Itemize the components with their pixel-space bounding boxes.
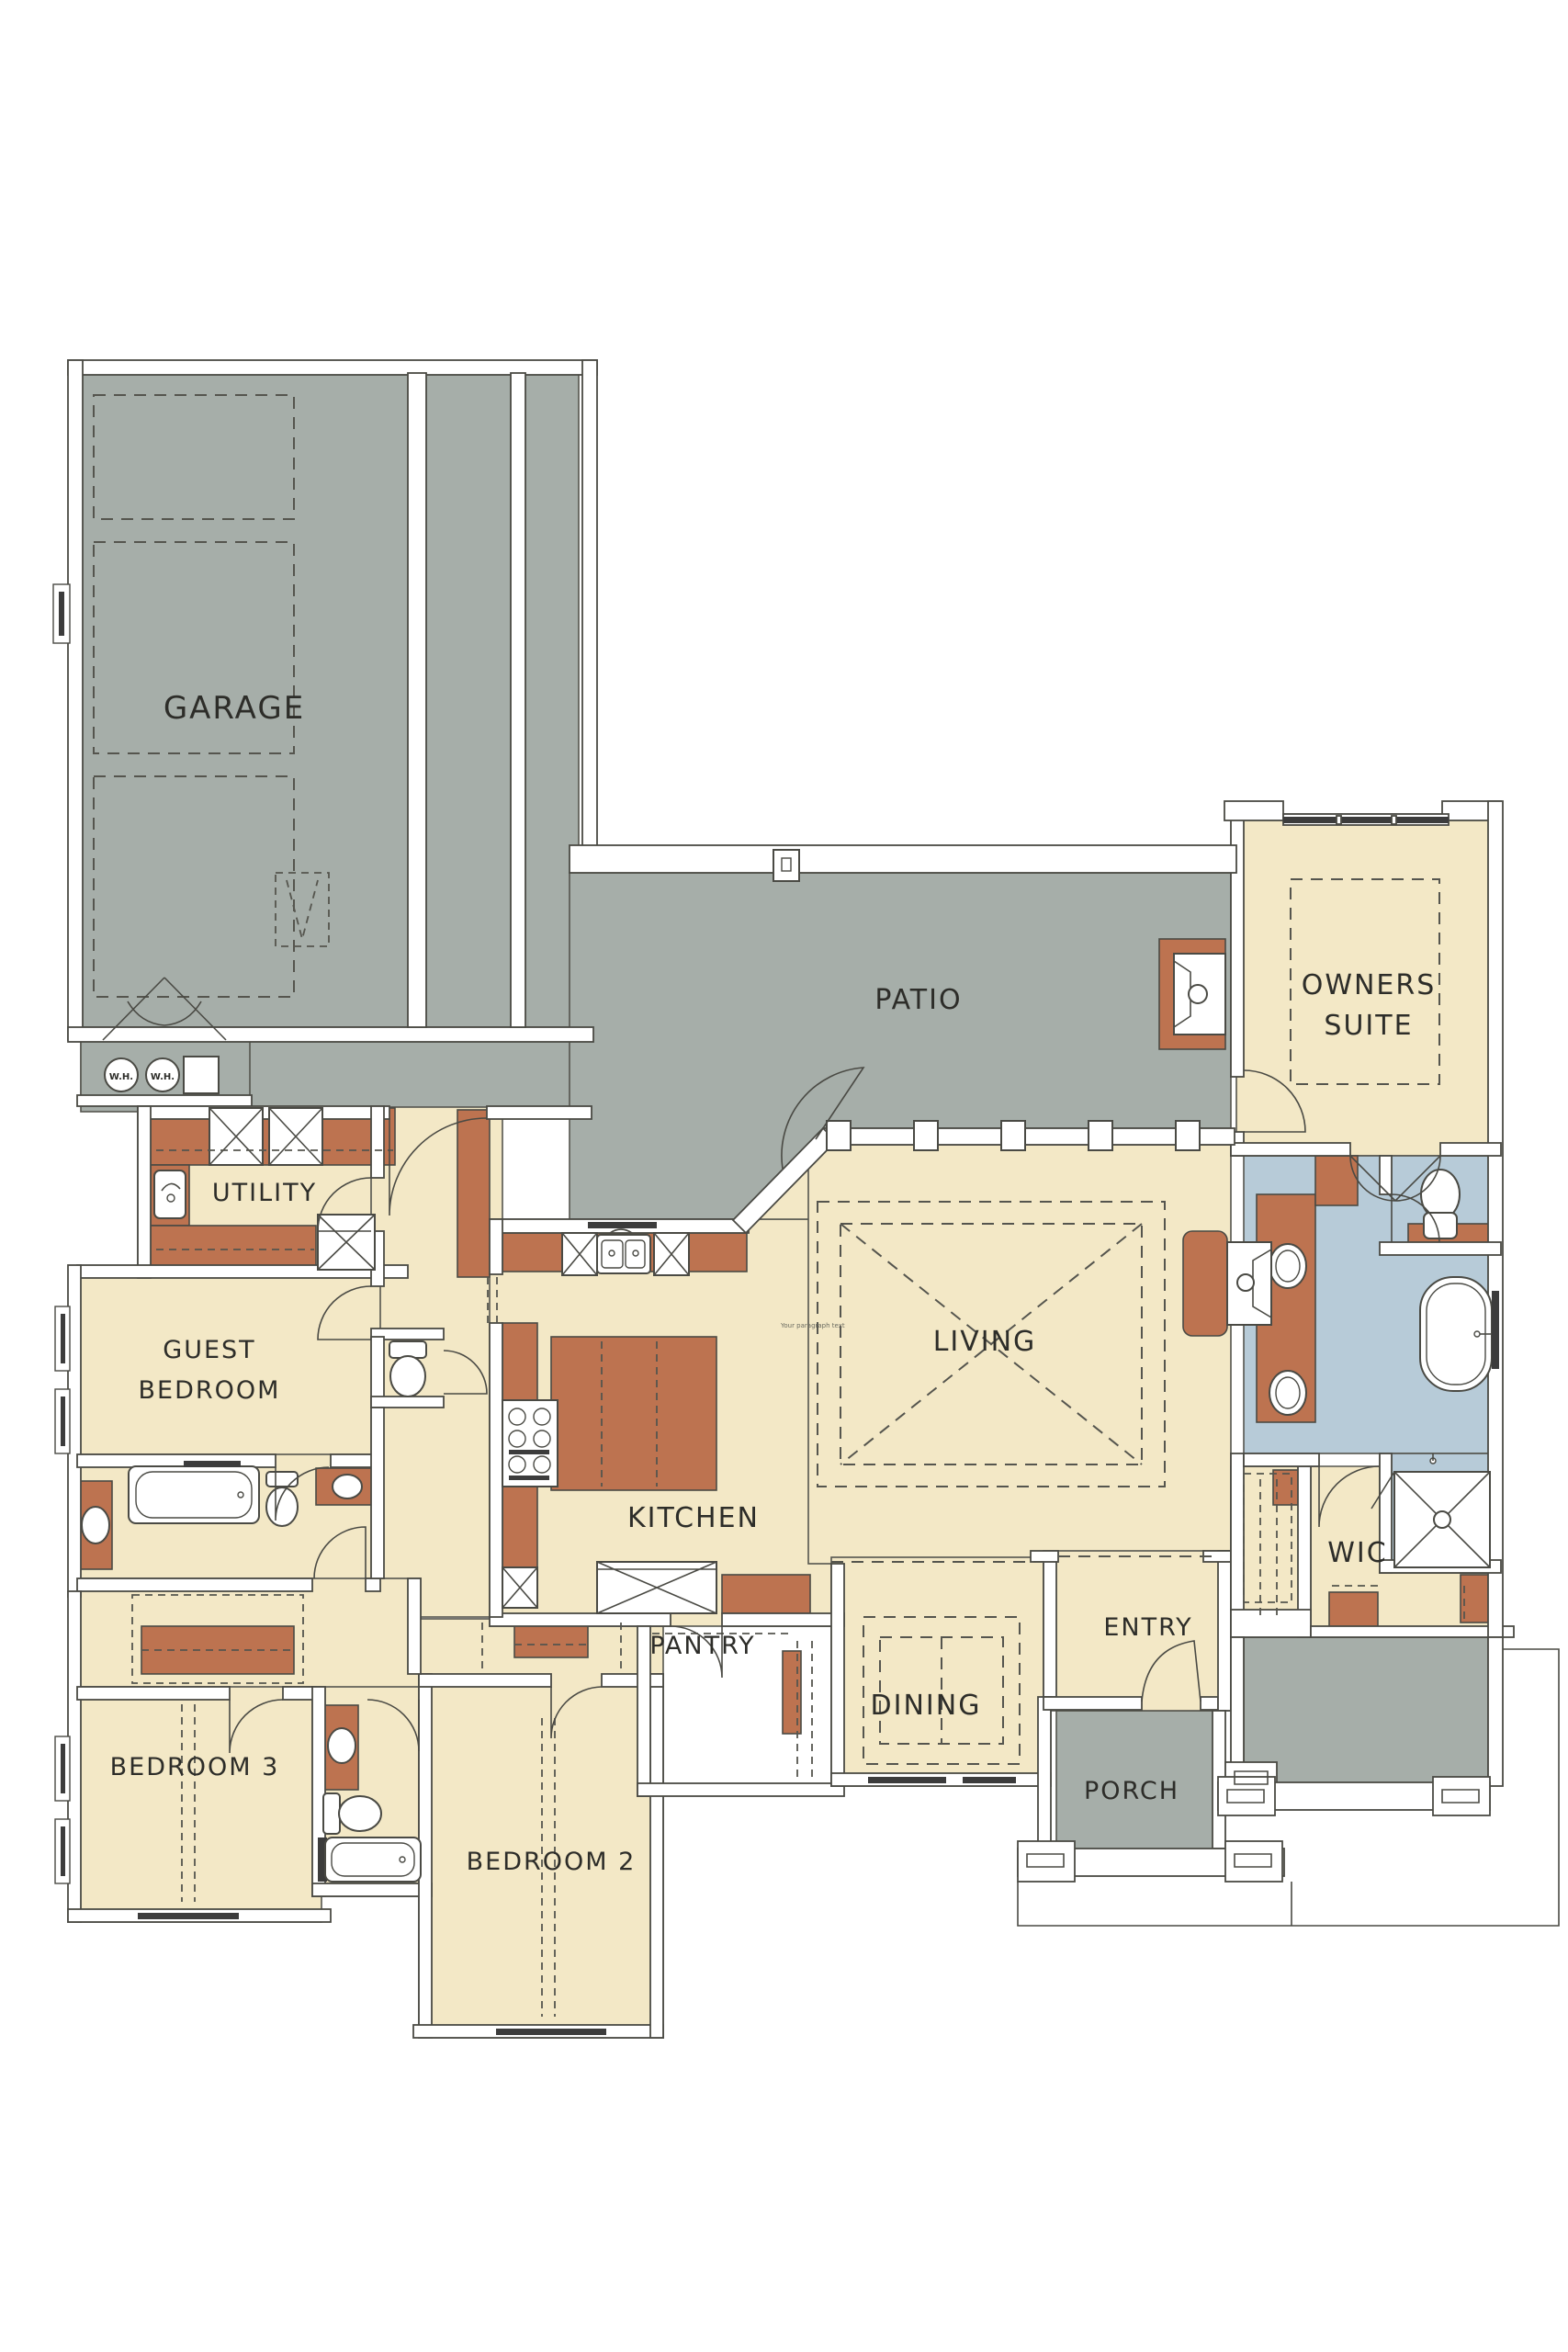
kitchen-fixtures-part [534, 1408, 550, 1425]
guest-bath-fixtures-part [238, 1492, 243, 1498]
walls-part [408, 373, 426, 1027]
master-bath-fixtures-part [1474, 1331, 1480, 1337]
owners-suite-label-line1: OWNERS [1302, 969, 1437, 1001]
master-tub-icon [1420, 1277, 1493, 1391]
wic-label: WIC [1327, 1537, 1387, 1569]
walls-part [312, 1883, 432, 1896]
walls-part [77, 1578, 312, 1591]
patio-label: PATIO [874, 984, 962, 1016]
dishwasher-icon [562, 1233, 597, 1275]
walls-part [823, 1128, 1235, 1145]
living-label: LIVING [933, 1326, 1037, 1358]
kitchen-fixtures-part [534, 1430, 550, 1447]
windows-part [138, 1913, 239, 1919]
kitchen-fixtures-part [509, 1408, 525, 1425]
bath2-fixtures-part [323, 1793, 340, 1834]
windows-part [1492, 1291, 1499, 1369]
walls-part [511, 373, 525, 1027]
garage-label: GARAGE [164, 690, 305, 727]
guest-sink2-icon [333, 1475, 362, 1498]
patio-posts-part [1001, 1121, 1025, 1150]
bath2-sink-icon [328, 1728, 355, 1763]
windows-part [868, 1777, 946, 1783]
walls-part [68, 1027, 593, 1042]
master-bath-fixtures-part [1421, 1170, 1460, 1219]
walls-part [582, 360, 597, 853]
walls-part [1038, 1697, 1051, 1858]
walls-part [650, 1674, 663, 2038]
walls-part [487, 1106, 592, 1119]
walls-part [637, 1783, 844, 1796]
bath2-tub-icon [318, 1837, 421, 1882]
dining-label: DINING [871, 1690, 982, 1722]
windows-part [1337, 816, 1341, 824]
windows-part [61, 1314, 65, 1363]
windows-part [1392, 816, 1396, 824]
bedroom2-label: BEDROOM 2 [467, 1848, 637, 1876]
kitchen-fixtures-part [509, 1430, 525, 1447]
range-icon [502, 1400, 558, 1487]
media-wall-tv-icon [1227, 1242, 1271, 1325]
patio-posts-part [1176, 1121, 1200, 1150]
patio-posts-part [782, 858, 791, 871]
walls-part [1440, 1143, 1501, 1156]
windows-part [1283, 817, 1449, 823]
walls-part [1311, 1626, 1514, 1637]
utility-counter-bottom [151, 1226, 316, 1268]
walls-part [77, 1095, 252, 1106]
guest-bath-fixtures-part [136, 1472, 252, 1518]
master-bath-fixtures-part [1276, 1250, 1300, 1282]
washer-icon [209, 1108, 263, 1165]
guest-bedroom-label-line1: GUEST [163, 1336, 255, 1364]
utility-fixtures-part [167, 1194, 175, 1202]
kitchen-sink-icon [597, 1229, 650, 1273]
kitchen-fixtures-part [534, 1456, 550, 1473]
guest-bath-fixtures-part [266, 1472, 298, 1487]
walls-part [138, 1106, 151, 1278]
patio-posts-part [1089, 1121, 1112, 1150]
media-wall [1183, 1231, 1227, 1336]
walls-part [831, 1564, 844, 1786]
refrigerator-icon [597, 1562, 716, 1613]
walls-part [371, 1396, 444, 1408]
walls-part [371, 1408, 384, 1578]
walls-part [490, 1613, 671, 1626]
pantry-shelf [783, 1651, 801, 1734]
patio-fireplace-icon [1174, 954, 1225, 1035]
walls-part [602, 1674, 663, 1687]
master-bath-fixtures-part [1276, 1377, 1300, 1408]
kitchen-fixtures-part [509, 1476, 549, 1480]
floor-plan-page: GARAGE PATIO OWNERS SUITE UTILITY GUEST … [0, 0, 1568, 2352]
windows-part [963, 1777, 1016, 1783]
walls-part [1218, 1551, 1231, 1711]
walls-part [1380, 1156, 1392, 1194]
walls-part [77, 1687, 230, 1700]
guest-bath-fixtures-part [266, 1487, 298, 1526]
walls-part [490, 1219, 502, 1274]
entry-label: ENTRY [1103, 1613, 1192, 1642]
watermark-text: Your paragraph text [780, 1322, 845, 1329]
bath2-fixtures-part [339, 1796, 381, 1831]
walls-part [408, 1578, 421, 1674]
guest-toilet-icon [266, 1472, 298, 1526]
kitchen-fixtures-part [609, 1250, 615, 1256]
freezer-icon [318, 1215, 375, 1270]
equipment-pad [184, 1057, 219, 1093]
walls-part [1224, 801, 1283, 820]
bath2-fixtures-part [400, 1857, 405, 1862]
walls-part [1043, 1557, 1056, 1697]
kitchen-west-counter-upper [502, 1323, 537, 1400]
owners-suite-label-line2: SUITE [1324, 1010, 1413, 1042]
walls-part [283, 1687, 316, 1700]
walls-part [419, 1674, 551, 1687]
media-wall-tv-icon-part [1237, 1274, 1254, 1291]
walls-part [68, 360, 83, 1040]
walls-part [490, 1323, 502, 1617]
rear-patio-floor [1244, 1637, 1488, 1786]
bath2-toilet-icon [323, 1793, 381, 1834]
walls-part [1201, 1697, 1218, 1710]
windows-part [496, 2029, 606, 2035]
patio-posts-part [914, 1121, 938, 1150]
kitchen-fixtures-part [509, 1450, 549, 1454]
master-bath-fixtures-part [1434, 1511, 1450, 1528]
guest-sink-icon [82, 1507, 109, 1543]
walls-part [1244, 1453, 1319, 1466]
garage-floor [81, 373, 579, 1027]
master-toilet-icon [1421, 1170, 1460, 1238]
bedroom3-label: BEDROOM 3 [110, 1753, 280, 1781]
walls-part [1231, 1610, 1311, 1637]
windows-part [184, 1461, 241, 1467]
wic-dresser [1329, 1592, 1378, 1629]
walls-part [1380, 1242, 1501, 1255]
coat-closet-shelf [1273, 1470, 1298, 1505]
kitchen-south-counter [722, 1575, 810, 1613]
windows-part [588, 1222, 657, 1228]
kitchen-west-counter-lower [502, 1487, 537, 1567]
floor-plan-drawing: GARAGE PATIO OWNERS SUITE UTILITY GUEST … [0, 0, 1568, 2352]
master-bath-fixtures-part [1424, 1213, 1457, 1238]
walls-part [371, 1106, 384, 1178]
bedroom2-closet-shelf [514, 1623, 588, 1657]
utility-label: UTILITY [212, 1179, 317, 1207]
water-heater-1-label: W.H. [109, 1072, 133, 1082]
walls-part [570, 845, 1236, 873]
pantry-label: PANTRY [649, 1632, 755, 1660]
walls-part [1031, 1551, 1058, 1562]
patio-fireplace-icon-part [1189, 985, 1207, 1003]
powder-toilet-icon-part [390, 1356, 425, 1396]
patio-posts-part [827, 1121, 851, 1150]
bedroom3-floor [77, 1687, 321, 1922]
second-dishwasher-icon [654, 1233, 689, 1275]
water-heater-2-label: W.H. [151, 1072, 175, 1082]
powder-toilet-icon [389, 1341, 426, 1396]
windows-part [61, 1826, 65, 1876]
walls-part [1231, 1143, 1350, 1156]
walls-part [722, 1613, 844, 1626]
kitchen-island [551, 1337, 716, 1490]
guest-bedroom-label-line2: BEDROOM [139, 1376, 281, 1405]
wall-oven-icon [502, 1567, 537, 1608]
walls-part [366, 1578, 380, 1591]
kitchen-fixtures-part [509, 1456, 525, 1473]
walls-part [1488, 1637, 1503, 1786]
utility-sink-icon [154, 1170, 186, 1218]
windows-part [59, 592, 64, 636]
mudroom-lockers [457, 1110, 490, 1277]
kitchen-label: KITCHEN [627, 1502, 760, 1534]
walls-part [637, 1626, 650, 1796]
windows-part [61, 1744, 65, 1793]
windows-part [61, 1396, 65, 1446]
guest-tub-icon [129, 1466, 259, 1523]
walls-part [77, 1454, 276, 1467]
walls-part [1043, 1697, 1142, 1710]
dryer-icon [269, 1108, 322, 1165]
porch-label: PORCH [1084, 1777, 1179, 1805]
kitchen-fixtures-part [633, 1250, 638, 1256]
